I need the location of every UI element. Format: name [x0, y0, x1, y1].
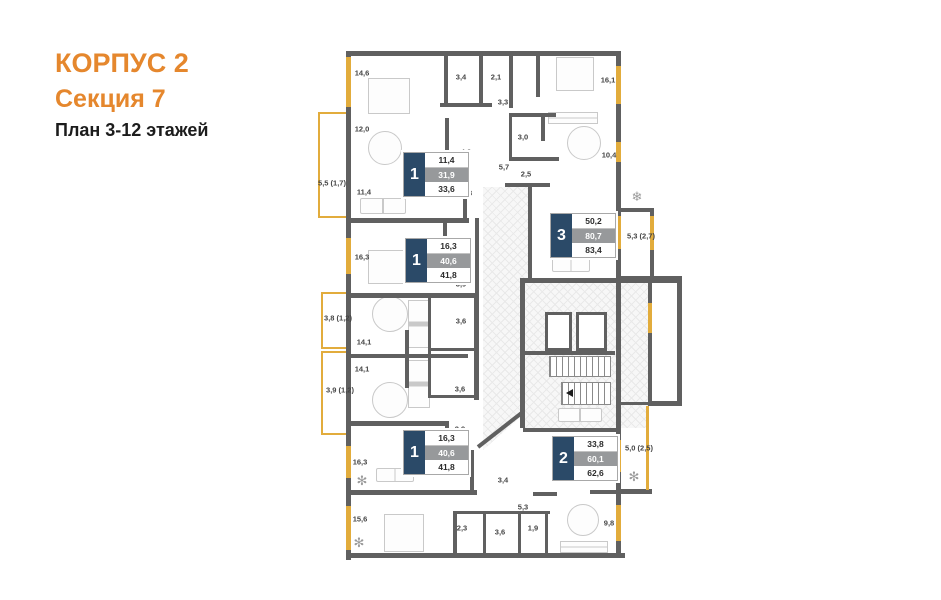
wall	[648, 401, 681, 406]
area-living: 40,6	[427, 254, 470, 268]
furniture-dining-table	[567, 126, 601, 160]
wall	[428, 395, 474, 398]
stair-direction-arrow	[566, 389, 573, 397]
furniture-sofa	[552, 258, 590, 272]
window-segment	[346, 446, 351, 478]
dimension-label: 2,3	[457, 524, 467, 533]
wall	[428, 298, 431, 398]
dimension-label: 14,1	[357, 338, 372, 347]
wall	[520, 183, 550, 187]
dimension-label: 3,4	[456, 73, 466, 82]
wall	[511, 157, 559, 161]
furniture-dining-table	[368, 131, 402, 165]
apartment-badge[interactable]: 2 33,8 60,1 62,6	[552, 436, 618, 481]
dimension-label: 16,1	[601, 76, 616, 85]
furniture-kitchen-counter	[408, 300, 430, 348]
dimension-label: 3,0	[518, 133, 528, 142]
dimension-label: 3,9 (1,2)	[326, 386, 354, 395]
wall	[518, 513, 521, 558]
wall	[677, 278, 682, 406]
wall	[648, 278, 652, 404]
dimension-label: 3,3	[498, 98, 508, 107]
furniture-sofa	[558, 408, 602, 422]
wall	[440, 103, 492, 107]
apartment-badge[interactable]: 3 50,2 80,7 83,4	[550, 213, 616, 258]
dimension-label: 3,6	[455, 385, 465, 394]
dimension-label: 3,8 (1,2)	[324, 314, 352, 323]
furniture-kitchen-counter	[408, 360, 430, 408]
wall	[347, 51, 620, 56]
elevator-shaft	[576, 312, 607, 351]
dimension-label: 3,6	[456, 317, 466, 326]
elevator-shaft	[545, 312, 572, 351]
wall	[444, 51, 448, 106]
window-segment	[616, 142, 621, 162]
dimension-label: 5,3	[518, 503, 528, 512]
area-living: 40,6	[425, 446, 468, 460]
wall	[483, 513, 486, 558]
window-segment	[346, 238, 351, 274]
area-total: 62,6	[574, 466, 617, 480]
wall	[479, 51, 483, 106]
wall	[523, 428, 618, 432]
area-total: 41,8	[425, 460, 468, 474]
furniture-dining-table	[372, 382, 408, 418]
ac-unit-icon: ❄	[632, 189, 643, 205]
furniture-bed	[368, 250, 408, 284]
apartment-badge[interactable]: 1 16,3 40,6 41,8	[403, 430, 469, 475]
dimension-label: 5,0 (2,5)	[625, 444, 653, 453]
dimension-label: 1,9	[528, 524, 538, 533]
wall	[347, 218, 469, 223]
dimension-label: 16,3	[355, 253, 370, 262]
dimension-label: 3,4	[498, 476, 508, 485]
dimension-label: 16,3	[353, 458, 368, 467]
wall	[347, 421, 449, 426]
wall	[528, 185, 532, 281]
furniture-sofa	[360, 198, 406, 214]
wall	[616, 51, 621, 558]
area-total: 33,6	[425, 182, 468, 196]
wall	[511, 113, 556, 117]
area-room: 16,3	[427, 239, 470, 254]
dimension-label: 2,5	[521, 170, 531, 179]
area-living: 80,7	[572, 229, 615, 243]
apartment-areas: 16,3 40,6 41,8	[425, 431, 468, 474]
wall	[347, 490, 477, 495]
apartment-rooms-count: 1	[404, 431, 425, 474]
area-room: 16,3	[425, 431, 468, 446]
wall	[350, 354, 468, 358]
wall	[523, 351, 615, 355]
apartment-areas: 11,4 31,9 33,6	[425, 153, 468, 196]
wall	[616, 208, 654, 212]
wall	[509, 51, 513, 108]
area-room: 33,8	[574, 437, 617, 452]
wall	[533, 492, 557, 496]
furniture-dining-table	[567, 504, 599, 536]
wall	[541, 113, 545, 141]
wall	[347, 293, 479, 298]
plant-icon: ✻	[629, 469, 640, 485]
apartment-areas: 33,8 60,1 62,6	[574, 437, 617, 480]
apartment-areas: 16,3 40,6 41,8	[427, 239, 470, 282]
wall	[509, 113, 512, 161]
apartment-rooms-count: 1	[406, 239, 427, 282]
apartment-areas: 50,2 80,7 83,4	[572, 214, 615, 257]
wall	[428, 348, 474, 351]
plant-icon: ✻	[354, 535, 365, 551]
apartment-rooms-count: 1	[404, 153, 425, 196]
dimension-label: 3,6	[495, 528, 505, 537]
dimension-label: 5,7	[499, 163, 509, 172]
dimension-label: 12,0	[355, 125, 370, 134]
furniture-kitchen-counter	[560, 541, 608, 553]
area-room: 11,4	[425, 153, 468, 168]
area-living: 31,9	[425, 168, 468, 182]
area-room: 50,2	[572, 214, 615, 229]
area-total: 83,4	[572, 243, 615, 257]
dimension-label: 14,1	[355, 365, 370, 374]
dimension-label: 9,8	[604, 519, 614, 528]
dimension-label: 10,4	[602, 151, 617, 160]
dimension-label: 5,5 (1,7)	[318, 179, 346, 188]
furniture-bed	[556, 57, 594, 91]
furniture-bed	[368, 78, 410, 114]
wall	[590, 490, 618, 494]
wall	[346, 51, 351, 560]
apartment-rooms-count: 2	[553, 437, 574, 480]
apartment-badge[interactable]: 1 16,3 40,6 41,8	[405, 238, 471, 283]
dimension-label: 11,4	[357, 188, 371, 197]
floor-plan: 1 11,4 31,9 33,6 1 16,3 40,6 41,8 3 50,2…	[0, 0, 941, 600]
wall	[520, 278, 682, 283]
furniture-bed	[384, 514, 424, 552]
dimension-label: 15,6	[353, 515, 368, 524]
dimension-label: 5,3 (2,7)	[627, 232, 655, 241]
wall	[453, 511, 550, 514]
wall	[475, 218, 479, 303]
wall	[405, 330, 409, 388]
wall	[545, 513, 548, 558]
wall	[536, 51, 540, 97]
dimension-label: 2,1	[491, 73, 501, 82]
window-segment	[616, 216, 621, 249]
area-living: 60,1	[574, 452, 617, 466]
window-segment	[648, 303, 652, 333]
wall	[474, 296, 479, 400]
dimension-label: 14,6	[355, 69, 370, 78]
window-segment	[346, 506, 351, 550]
area-total: 41,8	[427, 268, 470, 282]
wall	[619, 402, 649, 405]
window-segment	[346, 57, 351, 107]
window-segment	[616, 66, 621, 104]
plant-icon: ✻	[357, 473, 368, 489]
stair-flight	[549, 356, 611, 377]
apartment-badge[interactable]: 1 11,4 31,9 33,6	[403, 152, 469, 197]
wall	[453, 513, 457, 558]
window-segment	[616, 505, 621, 541]
apartment-rooms-count: 3	[551, 214, 572, 257]
furniture-dining-table	[372, 296, 408, 332]
